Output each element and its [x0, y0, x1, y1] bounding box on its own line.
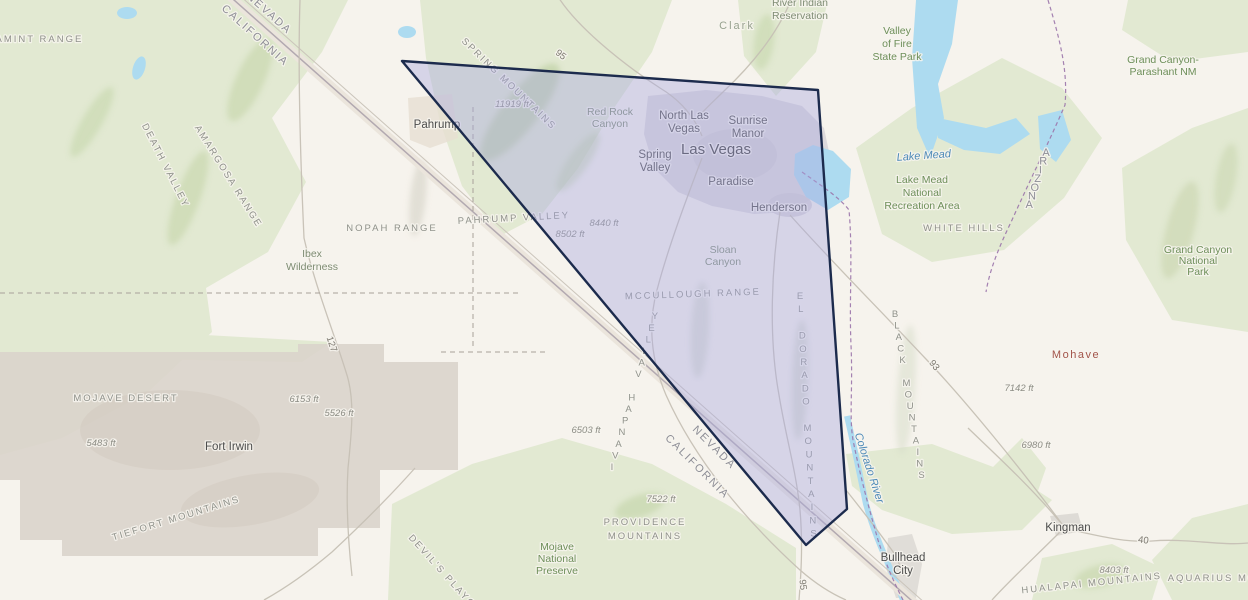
label-aquarius-mountains: AQUARIUS MOUNTAINS [1168, 573, 1248, 584]
label-white-hills: WHITE HILLS [923, 223, 1005, 234]
label-route-95-bottom: 95 [797, 579, 809, 590]
label-elev-5483: 5483 ft [86, 438, 115, 449]
label-mojave-desert: MOJAVE DESERT [73, 393, 178, 404]
topo-map[interactable]: PANAMINT RANGEDEATH VALLEYAMARGOSA RANGE… [0, 0, 1248, 600]
label-elev-7142: 7142 ft [1004, 383, 1033, 394]
label-elev-6503: 6503 ft [571, 425, 600, 436]
label-elev-5526: 5526 ft [324, 408, 353, 419]
label-nopah-range: NOPAH RANGE [346, 223, 438, 234]
label-clark-county: Clark [719, 20, 755, 32]
label-kingman: Kingman [1045, 522, 1090, 534]
map-canvas[interactable]: PANAMINT RANGEDEATH VALLEYAMARGOSA RANGE… [0, 0, 1248, 600]
label-elev-6153: 6153 ft [289, 394, 318, 405]
label-grand-canyon-parashant: Grand Canyon-Parashant NM [1127, 54, 1199, 78]
label-moapa-reservation: River IndianReservation [772, 0, 828, 22]
label-elev-6980: 6980 ft [1021, 440, 1050, 451]
label-mojave-preserve: MojaveNationalPreserve [536, 541, 578, 577]
label-panamint-range: PANAMINT RANGE [0, 34, 83, 45]
label-elev-7522: 7522 ft [646, 494, 675, 505]
label-mohave-county: Mohave [1052, 349, 1100, 361]
label-fort-irwin: Fort Irwin [205, 441, 253, 453]
label-route-40: 40 [1137, 534, 1149, 546]
